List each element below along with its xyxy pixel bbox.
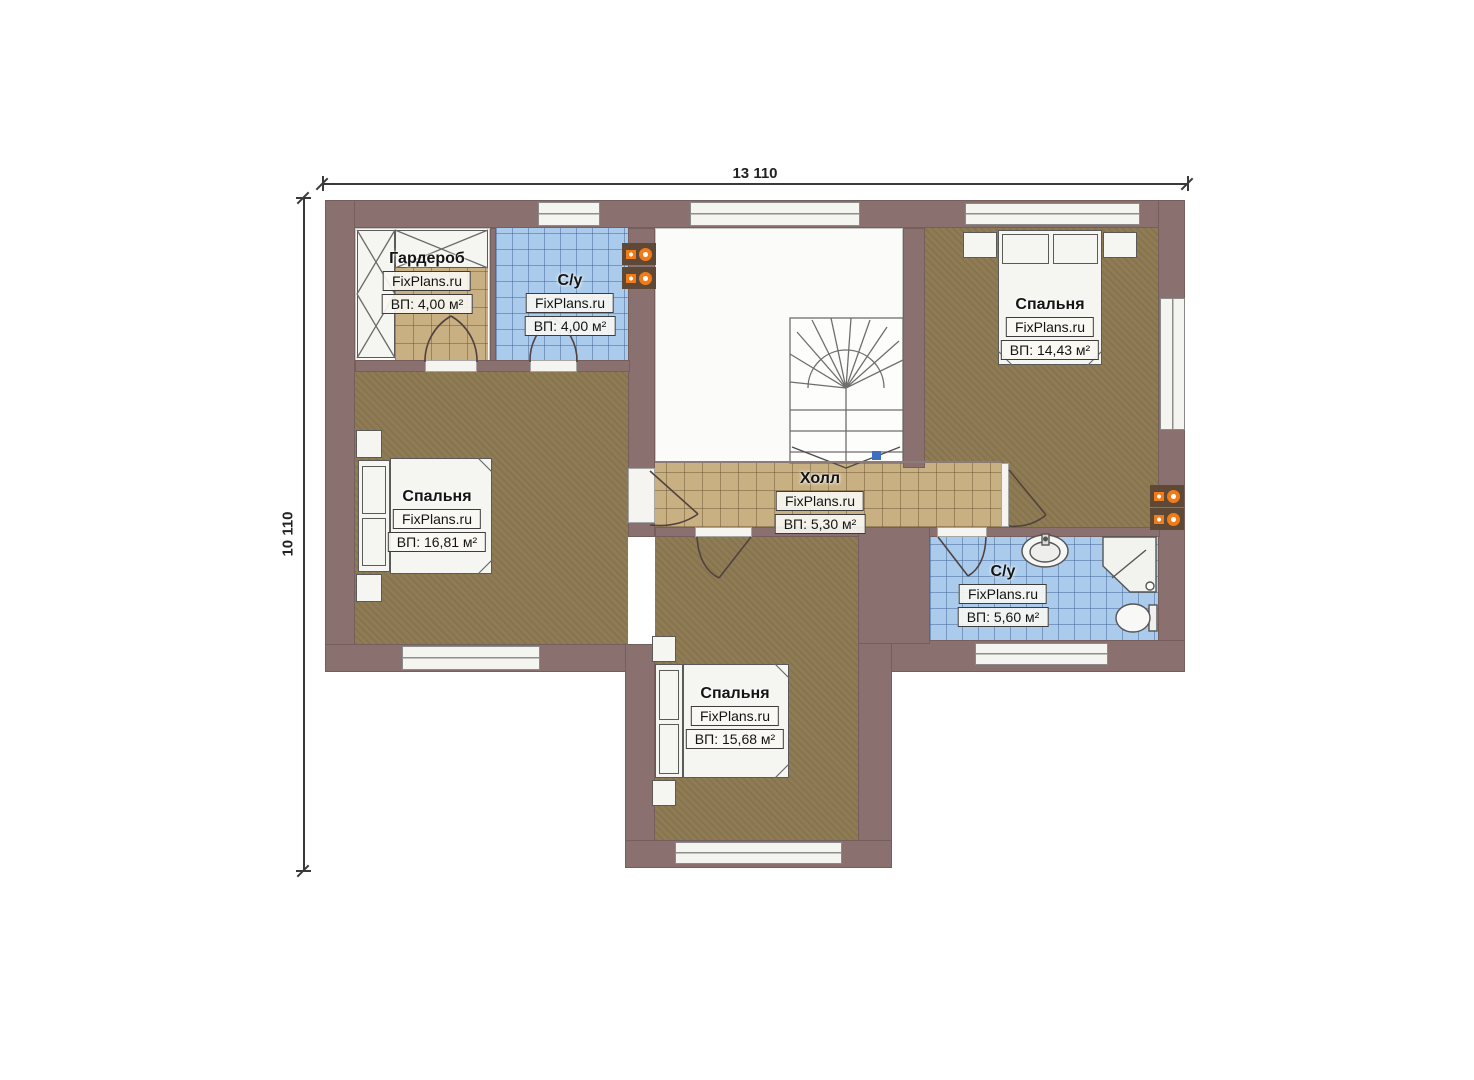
nightstand xyxy=(963,232,997,258)
room-label-bathroom-right: С/у FixPlans.ru ВП: 5,60 м² xyxy=(958,563,1049,627)
vent-square-icon xyxy=(1154,515,1164,524)
vent-circle-icon xyxy=(639,272,652,285)
room-name: С/у xyxy=(991,563,1016,581)
room-name: Спальня xyxy=(700,685,769,703)
watermark: FixPlans.ru xyxy=(383,271,471,291)
nightstand xyxy=(652,636,676,662)
room-label-bedroom-right: Спальня FixPlans.ru ВП: 14,43 м² xyxy=(1001,296,1099,360)
door-gap-wardrobe xyxy=(425,360,477,372)
wall-wardrobe-south xyxy=(355,360,630,372)
window-top-2 xyxy=(690,202,860,226)
window-top-3 xyxy=(965,203,1140,225)
vent-circle-icon xyxy=(1167,490,1180,503)
wall-wing-right xyxy=(858,640,892,868)
room-area: ВП: 4,00 м² xyxy=(525,316,616,336)
wall-left xyxy=(325,200,355,672)
watermark: FixPlans.ru xyxy=(959,584,1047,604)
dimension-label-height: 10 110 xyxy=(280,511,297,556)
vent-square-icon xyxy=(1154,492,1164,501)
window-bottom-left xyxy=(402,646,540,670)
pillow xyxy=(1002,234,1049,264)
room-label-hall: Холл FixPlans.ru ВП: 5,30 м² xyxy=(775,470,866,534)
room-area: ВП: 16,81 м² xyxy=(388,532,486,552)
room-label-bedroom-left: Спальня FixPlans.ru ВП: 16,81 м² xyxy=(388,488,486,552)
watermark: FixPlans.ru xyxy=(526,293,614,313)
door-gap-bedroom-right xyxy=(1001,463,1009,527)
room-label-wardrobe: Гардероб FixPlans.ru ВП: 4,00 м² xyxy=(382,250,473,314)
floor-plan: Гардероб FixPlans.ru ВП: 4,00 м² С/у Fix… xyxy=(0,0,1474,1080)
nightstand xyxy=(356,430,382,458)
wall-wing-left xyxy=(625,644,655,868)
window-right xyxy=(1160,298,1185,430)
pillow xyxy=(659,724,679,774)
room-name: Спальня xyxy=(402,488,471,506)
vent-circle-icon xyxy=(1167,513,1180,526)
wall-wardrobe-bath-divider xyxy=(490,228,496,368)
pillow xyxy=(362,466,386,514)
watermark: FixPlans.ru xyxy=(776,491,864,511)
door-gap-bathroom-top xyxy=(530,360,577,372)
vent-icon xyxy=(622,267,656,289)
vent-icon xyxy=(622,243,656,265)
room-name: Холл xyxy=(800,470,840,488)
stairwell-floor xyxy=(655,228,903,463)
window-bathroom-right xyxy=(975,643,1108,665)
room-area: ВП: 14,43 м² xyxy=(1001,340,1099,360)
door-gap-bedroom-bottom xyxy=(695,527,752,537)
wall-bath-block xyxy=(858,527,930,644)
watermark: FixPlans.ru xyxy=(1006,317,1094,337)
nightstand xyxy=(1103,232,1137,258)
vent-square-icon xyxy=(626,250,636,259)
vent-square-icon xyxy=(626,274,636,283)
vent-icon xyxy=(1150,485,1184,507)
vent-icon xyxy=(1150,508,1184,530)
watermark: FixPlans.ru xyxy=(393,509,481,529)
nightstand xyxy=(652,780,676,806)
pillow xyxy=(659,670,679,720)
watermark: FixPlans.ru xyxy=(691,706,779,726)
pillow xyxy=(362,518,386,566)
window-top-1 xyxy=(538,202,600,226)
pillow xyxy=(1053,234,1098,264)
room-area: ВП: 4,00 м² xyxy=(382,294,473,314)
room-area: ВП: 5,60 м² xyxy=(958,607,1049,627)
room-name: С/у xyxy=(558,272,583,290)
wall-stair-east xyxy=(903,228,925,468)
room-area: ВП: 15,68 м² xyxy=(686,729,784,749)
room-label-bathroom-top: С/у FixPlans.ru ВП: 4,00 м² xyxy=(525,272,616,336)
nightstand xyxy=(356,574,382,602)
room-name: Гардероб xyxy=(389,250,465,268)
door-gap-hall-west xyxy=(628,468,655,523)
room-name: Спальня xyxy=(1015,296,1084,314)
dimension-label-width: 13 110 xyxy=(732,165,777,182)
door-gap-bathroom-right xyxy=(937,527,987,537)
room-label-bedroom-bottom: Спальня FixPlans.ru ВП: 15,68 м² xyxy=(686,685,784,749)
window-wing-bottom xyxy=(675,842,842,864)
room-area: ВП: 5,30 м² xyxy=(775,514,866,534)
vent-circle-icon xyxy=(639,248,652,261)
wall-right xyxy=(1158,200,1185,672)
